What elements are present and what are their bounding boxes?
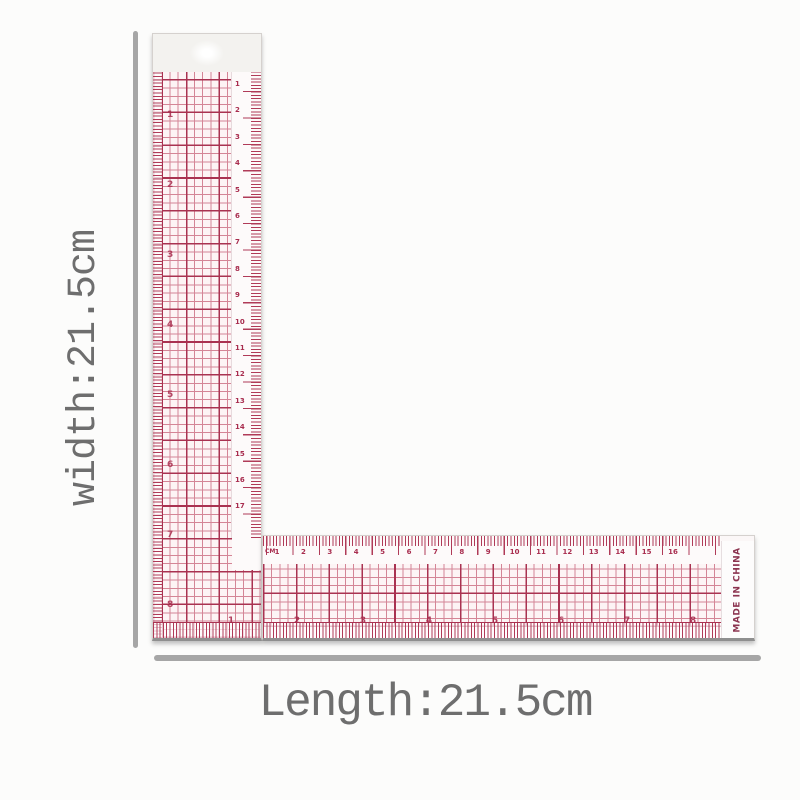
hang-tab (153, 34, 261, 73)
made-in-china-endcap: MADE IN CHINA (721, 541, 754, 638)
vertical-cm-scale: 1234567891011121314151617 (231, 72, 261, 538)
hang-hole-shine (190, 40, 224, 66)
length-label: Length:21.5cm (225, 676, 625, 731)
horizontal-cm-scale: CM 12345678910111213141516 (263, 536, 721, 565)
width-label: width:21.5cm (63, 168, 107, 568)
horizontal-cm-scale-numbers: 12345678910111213141516 (263, 548, 721, 562)
inner-corner-patch (232, 538, 261, 570)
vertical-grid: 12345678 1234567891011121314151617 (153, 72, 261, 638)
vertical-cm-scale-numbers: 1234567891011121314151617 (235, 72, 247, 538)
width-dimension-line (133, 31, 138, 648)
length-dimension-line (154, 655, 761, 661)
ruler-vertical-arm: 12345678 1234567891011121314151617 (152, 33, 262, 641)
inch-numbers-row: 12345678 (152, 616, 723, 630)
product-photo-scene: width:21.5cm 12345678 123456789101112131… (0, 0, 800, 800)
made-in-china-text: MADE IN CHINA (733, 547, 743, 632)
vertical-inch-numbers: 12345678 (167, 72, 185, 638)
left-edge-ticks (153, 72, 163, 638)
